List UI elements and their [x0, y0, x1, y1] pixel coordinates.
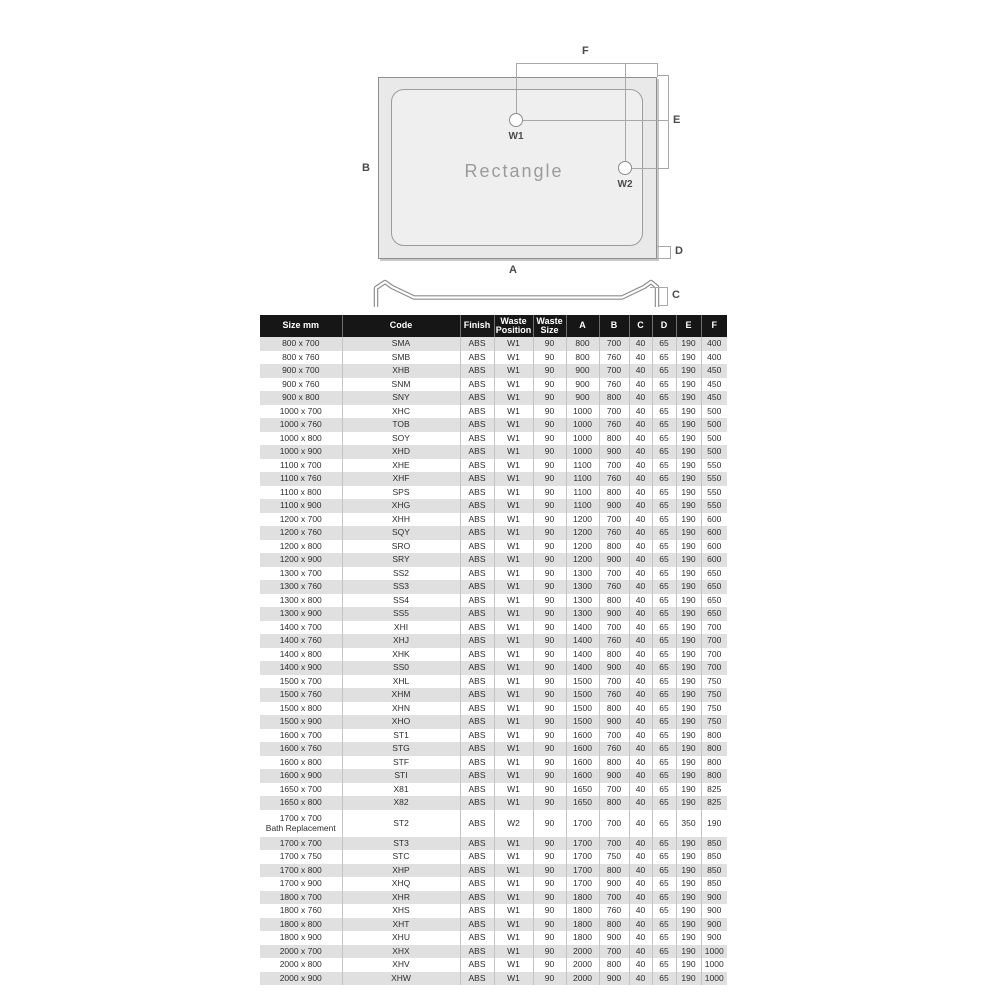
- table-cell: 90: [533, 526, 566, 540]
- table-cell: 1800: [566, 891, 599, 905]
- table-cell: 65: [652, 580, 676, 594]
- table-cell: 40: [629, 553, 652, 567]
- waste-w1-label: W1: [504, 131, 528, 142]
- table-row: 1600 x 800STFABSW19016008004065190800: [260, 756, 727, 770]
- table-cell: 65: [652, 850, 676, 864]
- table-cell: 1300 x 700: [260, 567, 342, 581]
- table-cell: 1700: [566, 877, 599, 891]
- table-cell: 40: [629, 364, 652, 378]
- table-cell: 40: [629, 499, 652, 513]
- table-cell: 190: [676, 850, 701, 864]
- table-cell: ABS: [460, 418, 494, 432]
- table-cell: 190: [676, 405, 701, 419]
- table-cell: 40: [629, 891, 652, 905]
- table-cell: 190: [676, 945, 701, 959]
- table-cell: 40: [629, 688, 652, 702]
- dim-tick-e-bottom: [632, 168, 669, 169]
- table-cell: 65: [652, 459, 676, 473]
- table-cell: 65: [652, 634, 676, 648]
- table-row: 1400 x 800XHKABSW19014008004065190700: [260, 648, 727, 662]
- tray-profile-section: [370, 276, 670, 316]
- table-cell: XHN: [342, 702, 460, 716]
- table-cell: SS3: [342, 580, 460, 594]
- table-cell: 65: [652, 864, 676, 878]
- table-cell: 90: [533, 756, 566, 770]
- table-cell: 40: [629, 459, 652, 473]
- table-cell: 1000: [566, 432, 599, 446]
- dim-label-b: B: [362, 162, 370, 174]
- table-cell: 190: [676, 364, 701, 378]
- table-cell: 350: [676, 810, 701, 837]
- table-cell: W1: [494, 594, 533, 608]
- table-cell: 1200 x 760: [260, 526, 342, 540]
- table-cell: 1400: [566, 634, 599, 648]
- table-cell: 90: [533, 742, 566, 756]
- table-cell: 1200 x 700: [260, 513, 342, 527]
- table-cell: 1000 x 760: [260, 418, 342, 432]
- table-cell: 40: [629, 472, 652, 486]
- table-cell: 90: [533, 499, 566, 513]
- table-cell: TOB: [342, 418, 460, 432]
- table-cell: 65: [652, 567, 676, 581]
- table-cell: 550: [701, 486, 727, 500]
- table-cell: W1: [494, 364, 533, 378]
- table-row: 1800 x 900XHUABSW19018009004065190900: [260, 931, 727, 945]
- table-cell: ABS: [460, 742, 494, 756]
- table-cell: 40: [629, 351, 652, 365]
- table-cell: W1: [494, 459, 533, 473]
- table-cell: 65: [652, 918, 676, 932]
- table-cell: 190: [676, 864, 701, 878]
- table-cell: 800: [701, 756, 727, 770]
- table-cell: 40: [629, 769, 652, 783]
- table-cell: ABS: [460, 580, 494, 594]
- table-cell: 1000 x 900: [260, 445, 342, 459]
- table-cell: 65: [652, 688, 676, 702]
- table-cell: 190: [676, 391, 701, 405]
- table-row: 800 x 700SMAABSW1908007004065190400: [260, 337, 727, 351]
- table-cell: ST2: [342, 810, 460, 837]
- table-cell: 1600: [566, 769, 599, 783]
- table-cell: W1: [494, 661, 533, 675]
- table-cell: 90: [533, 607, 566, 621]
- table-cell: 1400 x 900: [260, 661, 342, 675]
- table-cell: ABS: [460, 756, 494, 770]
- table-cell: 190: [676, 445, 701, 459]
- table-cell: 90: [533, 945, 566, 959]
- table-cell: 1600 x 760: [260, 742, 342, 756]
- table-cell: 1700 x 900: [260, 877, 342, 891]
- table-cell: 2000: [566, 945, 599, 959]
- table-row: 1800 x 700XHRABSW19018007004065190900: [260, 891, 727, 905]
- table-cell: 1000 x 700: [260, 405, 342, 419]
- dim-line-w2-vertical: [625, 63, 626, 161]
- table-cell: 90: [533, 918, 566, 932]
- table-cell: 190: [676, 675, 701, 689]
- table-cell: 800 x 760: [260, 351, 342, 365]
- table-cell: 1800: [566, 931, 599, 945]
- table-cell: ST3: [342, 837, 460, 851]
- table-cell: 65: [652, 796, 676, 810]
- table-cell: 90: [533, 553, 566, 567]
- table-cell: 190: [676, 486, 701, 500]
- table-cell: 750: [701, 675, 727, 689]
- table-cell: W1: [494, 972, 533, 986]
- table-cell: 800: [701, 769, 727, 783]
- table-cell: 700: [599, 945, 629, 959]
- table-row: 1000 x 760TOBABSW19010007604065190500: [260, 418, 727, 432]
- table-cell: 90: [533, 418, 566, 432]
- table-cell: 40: [629, 594, 652, 608]
- table-cell: X82: [342, 796, 460, 810]
- table-cell: W1: [494, 553, 533, 567]
- table-cell: W1: [494, 958, 533, 972]
- table-cell: 40: [629, 715, 652, 729]
- table-cell: XHM: [342, 688, 460, 702]
- table-cell: 1100 x 800: [260, 486, 342, 500]
- table-cell: 90: [533, 472, 566, 486]
- table-cell: 190: [676, 742, 701, 756]
- table-cell: 1800 x 700: [260, 891, 342, 905]
- table-cell: 65: [652, 891, 676, 905]
- table-cell: 1400 x 700: [260, 621, 342, 635]
- table-cell: SQY: [342, 526, 460, 540]
- table-cell: W1: [494, 540, 533, 554]
- table-cell: 190: [676, 459, 701, 473]
- table-cell: 65: [652, 364, 676, 378]
- table-cell: W1: [494, 391, 533, 405]
- table-cell: XHB: [342, 364, 460, 378]
- table-cell: ABS: [460, 837, 494, 851]
- table-cell: ABS: [460, 351, 494, 365]
- table-cell: 850: [701, 837, 727, 851]
- table-cell: 700: [599, 810, 629, 837]
- table-cell: SMB: [342, 351, 460, 365]
- table-cell: 40: [629, 756, 652, 770]
- table-cell: 65: [652, 783, 676, 797]
- table-cell: 850: [701, 850, 727, 864]
- table-cell: 2000 x 700: [260, 945, 342, 959]
- table-cell: SOY: [342, 432, 460, 446]
- table-cell: 550: [701, 499, 727, 513]
- table-cell: 40: [629, 337, 652, 351]
- table-cell: 760: [599, 378, 629, 392]
- table-cell: 1300: [566, 580, 599, 594]
- table-cell: 90: [533, 594, 566, 608]
- table-cell: ABS: [460, 378, 494, 392]
- table-cell: 750: [701, 702, 727, 716]
- table-cell: 800 x 700: [260, 337, 342, 351]
- table-row: 1500 x 700XHLABSW19015007004065190750: [260, 675, 727, 689]
- table-cell: ABS: [460, 661, 494, 675]
- table-cell: 1700 x 700Bath Replacement: [260, 810, 342, 837]
- table-cell: 1400 x 800: [260, 648, 342, 662]
- table-cell: 760: [599, 634, 629, 648]
- table-cell: 90: [533, 688, 566, 702]
- table-cell: 190: [676, 931, 701, 945]
- table-cell: ABS: [460, 486, 494, 500]
- table-cell: 2000 x 800: [260, 958, 342, 972]
- table-cell: ABS: [460, 472, 494, 486]
- table-cell: ABS: [460, 715, 494, 729]
- table-cell: 190: [676, 688, 701, 702]
- table-cell: 65: [652, 391, 676, 405]
- table-cell: 900 x 760: [260, 378, 342, 392]
- table-cell: 900: [701, 918, 727, 932]
- table-cell: 1200: [566, 553, 599, 567]
- table-cell: 190: [676, 648, 701, 662]
- table-cell: ABS: [460, 621, 494, 635]
- table-cell: 900: [599, 931, 629, 945]
- table-cell: 65: [652, 418, 676, 432]
- table-cell: 190: [676, 877, 701, 891]
- table-cell: ABS: [460, 553, 494, 567]
- table-row: 1700 x 700ST3ABSW19017007004065190850: [260, 837, 727, 851]
- table-cell: 800: [599, 648, 629, 662]
- table-cell: ABS: [460, 594, 494, 608]
- dim-label-e: E: [673, 114, 680, 126]
- table-cell: 700: [599, 364, 629, 378]
- table-cell: 40: [629, 405, 652, 419]
- table-cell: 1200 x 800: [260, 540, 342, 554]
- table-cell: 1700: [566, 810, 599, 837]
- table-cell: 90: [533, 702, 566, 716]
- table-row: 1200 x 760SQYABSW19012007604065190600: [260, 526, 727, 540]
- table-cell: 90: [533, 648, 566, 662]
- table-cell: 1600 x 700: [260, 729, 342, 743]
- table-cell: ABS: [460, 877, 494, 891]
- table-cell: 1000: [701, 958, 727, 972]
- table-cell: 65: [652, 958, 676, 972]
- table-cell: 1400 x 760: [260, 634, 342, 648]
- table-cell: 1600: [566, 756, 599, 770]
- table-cell: 1800 x 900: [260, 931, 342, 945]
- table-cell: 760: [599, 472, 629, 486]
- table-row: 1200 x 700XHHABSW19012007004065190600: [260, 513, 727, 527]
- table-cell: XHG: [342, 499, 460, 513]
- table-cell: ABS: [460, 918, 494, 932]
- table-cell: 65: [652, 405, 676, 419]
- table-cell: 700: [599, 783, 629, 797]
- table-cell: 65: [652, 553, 676, 567]
- table-cell: 65: [652, 594, 676, 608]
- table-cell: 65: [652, 702, 676, 716]
- table-cell: XHD: [342, 445, 460, 459]
- table-cell: XHE: [342, 459, 460, 473]
- table-cell: 190: [676, 729, 701, 743]
- table-cell: XHK: [342, 648, 460, 662]
- table-cell: XHH: [342, 513, 460, 527]
- table-cell: 1300 x 900: [260, 607, 342, 621]
- table-cell: W1: [494, 702, 533, 716]
- table-cell: 500: [701, 432, 727, 446]
- table-cell: 900: [599, 661, 629, 675]
- table-row: 1100 x 760XHFABSW19011007604065190550: [260, 472, 727, 486]
- table-cell: ABS: [460, 445, 494, 459]
- table-row: 1300 x 800SS4ABSW19013008004065190650: [260, 594, 727, 608]
- table-cell: 900: [599, 715, 629, 729]
- table-cell: 1600: [566, 742, 599, 756]
- table-cell: 190: [676, 553, 701, 567]
- table-cell: XHS: [342, 904, 460, 918]
- table-cell: XHO: [342, 715, 460, 729]
- dim-line-d: [670, 246, 671, 259]
- table-cell: 600: [701, 526, 727, 540]
- table-cell: 190: [676, 891, 701, 905]
- table-cell: 190: [676, 499, 701, 513]
- table-cell: 1800 x 800: [260, 918, 342, 932]
- table-cell: 900: [566, 378, 599, 392]
- table-cell: 40: [629, 378, 652, 392]
- table-cell: 65: [652, 877, 676, 891]
- table-cell: 750: [701, 715, 727, 729]
- table-cell: 190: [676, 337, 701, 351]
- table-cell: 500: [701, 405, 727, 419]
- table-cell: 90: [533, 634, 566, 648]
- table-row: 1000 x 900XHDABSW19010009004065190500: [260, 445, 727, 459]
- table-cell: 40: [629, 729, 652, 743]
- table-cell: 1700 x 750: [260, 850, 342, 864]
- table-cell: 40: [629, 864, 652, 878]
- table-cell: 800: [599, 756, 629, 770]
- table-cell: 190: [676, 796, 701, 810]
- table-cell: 190: [676, 621, 701, 635]
- table-cell: 90: [533, 513, 566, 527]
- table-cell: 190: [676, 432, 701, 446]
- table-cell: 1100: [566, 486, 599, 500]
- table-cell: 1400: [566, 648, 599, 662]
- table-cell: 65: [652, 621, 676, 635]
- table-cell: 700: [599, 459, 629, 473]
- table-cell: 65: [652, 931, 676, 945]
- table-cell: ABS: [460, 513, 494, 527]
- table-cell: W1: [494, 445, 533, 459]
- table-cell: 40: [629, 958, 652, 972]
- table-cell: 40: [629, 972, 652, 986]
- table-row: 1100 x 900XHGABSW19011009004065190550: [260, 499, 727, 513]
- table-cell: X81: [342, 783, 460, 797]
- table-cell: ABS: [460, 783, 494, 797]
- table-cell: ABS: [460, 337, 494, 351]
- table-cell: 900: [566, 391, 599, 405]
- table-cell: 900: [599, 769, 629, 783]
- table-cell: W2: [494, 810, 533, 837]
- table-cell: 65: [652, 729, 676, 743]
- table-cell: 700: [599, 837, 629, 851]
- table-cell: W1: [494, 351, 533, 365]
- table-cell: 90: [533, 486, 566, 500]
- table-row: 1000 x 800SOYABSW19010008004065190500: [260, 432, 727, 446]
- table-cell: 40: [629, 445, 652, 459]
- column-header: WastePosition: [494, 315, 533, 337]
- table-cell: 40: [629, 675, 652, 689]
- table-cell: 65: [652, 378, 676, 392]
- table-cell: 1100: [566, 499, 599, 513]
- table-cell: XHV: [342, 958, 460, 972]
- table-cell: 900: [599, 972, 629, 986]
- table-cell: 90: [533, 877, 566, 891]
- table-cell: ABS: [460, 904, 494, 918]
- table-cell: 1100: [566, 459, 599, 473]
- table-cell: 65: [652, 472, 676, 486]
- table-cell: 900: [701, 931, 727, 945]
- table-cell: 1800: [566, 918, 599, 932]
- table-cell: 1500: [566, 675, 599, 689]
- table-cell: 90: [533, 378, 566, 392]
- table-cell: 40: [629, 796, 652, 810]
- dim-tick-c-top: [650, 287, 668, 288]
- table-cell: ABS: [460, 526, 494, 540]
- table-cell: 700: [599, 567, 629, 581]
- table-cell: 850: [701, 877, 727, 891]
- table-cell: W1: [494, 891, 533, 905]
- table-cell: 450: [701, 364, 727, 378]
- table-cell: 800: [599, 391, 629, 405]
- table-cell: 65: [652, 337, 676, 351]
- table-cell: 1800: [566, 904, 599, 918]
- table-cell: 65: [652, 432, 676, 446]
- table-cell: 65: [652, 837, 676, 851]
- column-header: E: [676, 315, 701, 337]
- table-row: 1500 x 900XHOABSW19015009004065190750: [260, 715, 727, 729]
- table-cell: ABS: [460, 459, 494, 473]
- table-cell: 90: [533, 891, 566, 905]
- dim-tick-d-bottom: [657, 258, 671, 259]
- table-cell: ABS: [460, 648, 494, 662]
- table-row: 900 x 800SNYABSW1909008004065190450: [260, 391, 727, 405]
- table-cell: 90: [533, 931, 566, 945]
- table-row: 1100 x 800SPSABSW19011008004065190550: [260, 486, 727, 500]
- table-cell: 800: [599, 958, 629, 972]
- table-row: 2000 x 800XHVABSW190200080040651901000: [260, 958, 727, 972]
- table-cell: 90: [533, 864, 566, 878]
- dim-line-f: [516, 63, 657, 64]
- table-cell: 90: [533, 432, 566, 446]
- table-cell: W1: [494, 337, 533, 351]
- table-cell: ABS: [460, 945, 494, 959]
- table-cell: 40: [629, 850, 652, 864]
- table-cell: 600: [701, 553, 727, 567]
- table-cell: 1100 x 700: [260, 459, 342, 473]
- table-cell: 190: [676, 661, 701, 675]
- table-cell: SS5: [342, 607, 460, 621]
- table-cell: W1: [494, 499, 533, 513]
- table-cell: 900: [599, 445, 629, 459]
- table-cell: 190: [676, 715, 701, 729]
- table-cell: W1: [494, 472, 533, 486]
- table-cell: W1: [494, 850, 533, 864]
- table-cell: 825: [701, 796, 727, 810]
- dim-label-f: F: [582, 45, 589, 57]
- table-cell: W1: [494, 634, 533, 648]
- table-cell: 800: [701, 729, 727, 743]
- table-cell: 760: [599, 526, 629, 540]
- table-cell: 90: [533, 661, 566, 675]
- table-cell: 1700 x 800: [260, 864, 342, 878]
- table-cell: 800: [566, 351, 599, 365]
- table-cell: 65: [652, 945, 676, 959]
- dim-label-d: D: [675, 245, 683, 257]
- table-cell: 2000: [566, 972, 599, 986]
- table-cell: W1: [494, 675, 533, 689]
- table-row: 1500 x 760XHMABSW19015007604065190750: [260, 688, 727, 702]
- table-cell: 190: [676, 904, 701, 918]
- table-cell: 190: [676, 918, 701, 932]
- table-cell: W1: [494, 715, 533, 729]
- table-cell: 1000: [566, 445, 599, 459]
- table-cell: 1300 x 760: [260, 580, 342, 594]
- table-cell: 1100: [566, 472, 599, 486]
